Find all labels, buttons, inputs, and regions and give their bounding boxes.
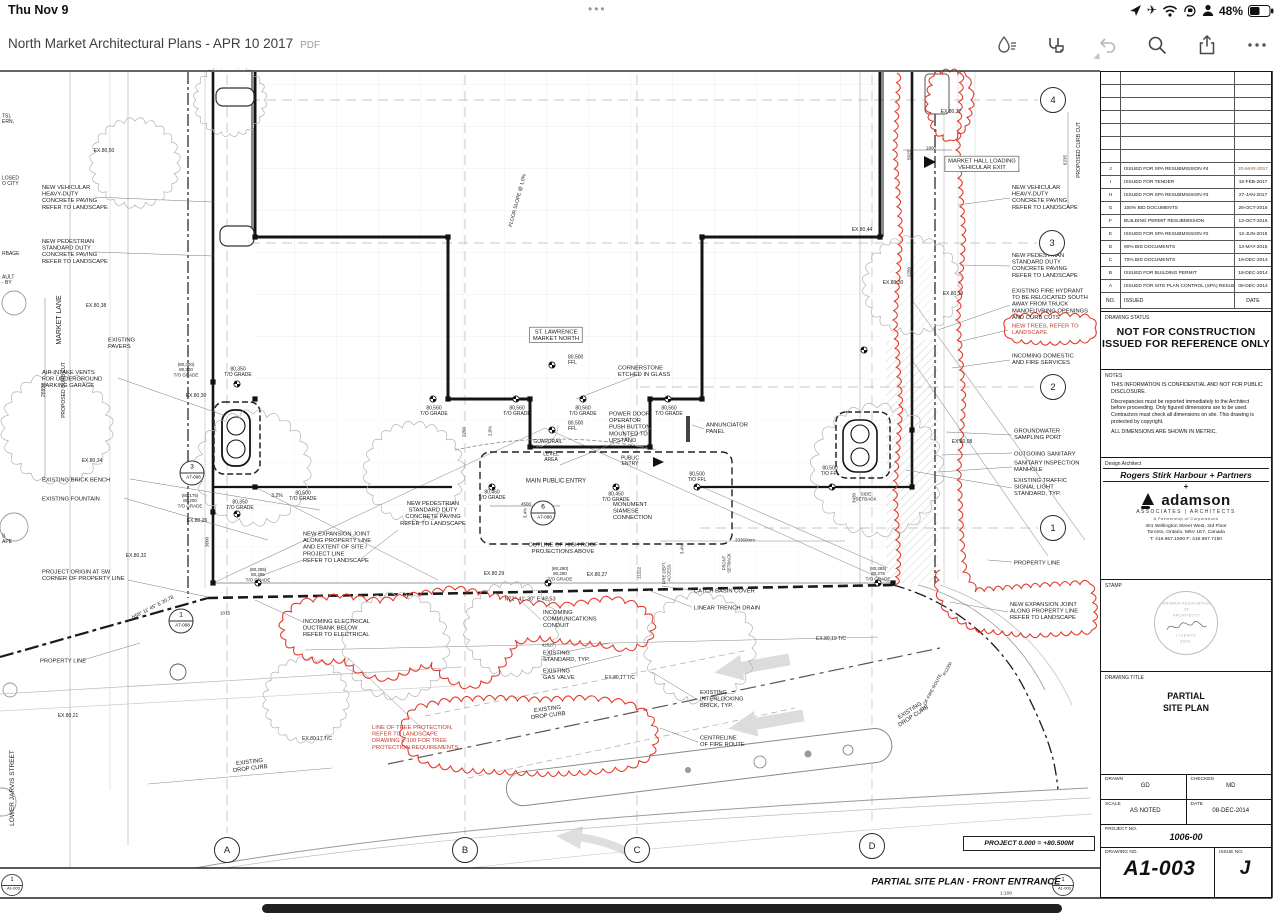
site-plan-drawing (0, 0, 1280, 915)
revision-row: FBUILDING PERMIT RESUBMISSION13-OCT-2016 (1101, 215, 1271, 228)
revision-row (1101, 72, 1271, 85)
revision-cloud (279, 586, 656, 689)
scale-date-row: SCALEAS NOTED DATE08-DEC-2014 (1101, 799, 1271, 824)
issue-no-value: J (1219, 858, 1271, 880)
project-no-value: 1006-00 (1101, 832, 1271, 842)
tree-canopy (342, 592, 450, 700)
more-options-button[interactable] (1246, 34, 1268, 56)
architect-stamp: ONTARIO ASSOCIATION OF ARCHITECTS LICENC… (1154, 591, 1218, 655)
revision-table: JISSUED FOR SPA RESUBMISSION #420-MAR-20… (1101, 72, 1271, 311)
share-icon (1196, 34, 1218, 56)
revision-row: HISSUED FOR SPA RESUBMISSION #327-JAN-20… (1101, 189, 1271, 202)
revision-row: AISSUED FOR SITE PLAN CONTROL (SPA) RESU… (1101, 280, 1271, 293)
view-title: PARTIAL SITE PLAN - FRONT ENTRANCE (872, 877, 1061, 888)
section-label: DRAWING STATUS (1101, 312, 1271, 321)
search-button[interactable] (1146, 34, 1168, 56)
note-p2: Discrepancies must be reported immediate… (1111, 399, 1265, 426)
revision-row (1101, 150, 1271, 163)
revision-row (1101, 98, 1271, 111)
architect-address: 401 Wellington Street West, 3rd Floor To… (1101, 524, 1271, 543)
view-settings-button[interactable] (1046, 34, 1068, 56)
revision-row: NO.ISSUEDDATE (1101, 293, 1271, 309)
liquid-mode-icon (996, 34, 1018, 56)
project-datum-box: PROJECT 0.000 = +80.500M (963, 836, 1095, 851)
drawing-title: PARTIAL SITE PLAN (1101, 691, 1271, 715)
status-date: Thu Nov 9 (8, 3, 68, 17)
date-value: 08-DEC-2014 (1191, 808, 1272, 814)
status-line2: ISSUED FOR REFERENCE ONLY (1101, 338, 1271, 350)
adamson-tagline: A Partnership of Corporations (1120, 517, 1253, 522)
status-line1: NOT FOR CONSTRUCTION (1101, 326, 1271, 338)
share-button[interactable] (1196, 34, 1218, 56)
revision-row (1101, 137, 1271, 150)
wifi-icon (1162, 5, 1178, 17)
status-center-dots-icon: ••• (588, 2, 607, 16)
annunciator-panel-symbol (686, 416, 690, 442)
drawing-title-section: DRAWING TITLE PARTIAL SITE PLAN (1101, 671, 1271, 774)
adamson-logo-text: adamson (1161, 492, 1230, 509)
revision-cloud (1004, 312, 1096, 345)
vehicular-exit-arrow (924, 156, 936, 168)
rotation-lock-icon (1183, 4, 1197, 17)
battery-icon (1248, 5, 1274, 17)
note-p1: THIS INFORMATION IS CONFIDENTIAL AND NOT… (1111, 382, 1265, 396)
revision-row: IISSUED FOR TENDER15-FEB-2017 (1101, 176, 1271, 189)
search-icon (1146, 34, 1168, 56)
revision-cloud (934, 73, 1097, 638)
stamp-signature (1164, 619, 1208, 633)
drawn-checked-row: DRAWNGD CHECKEDMD (1101, 774, 1271, 799)
forecourt-floor-grid (213, 399, 913, 583)
pdf-page[interactable]: TS), ERN,LOSED O CITYRBAGEAULT - BYS APE… (0, 0, 1280, 915)
document-title: North Market Architectural Plans - APR 1… (8, 36, 320, 51)
view-settings-icon (1046, 34, 1068, 56)
drawn-value: GD (1105, 783, 1186, 789)
revision-row (1101, 111, 1271, 124)
note-p3: ALL DIMENSIONS ARE SHOWN IN METRIC. (1111, 429, 1265, 436)
revision-row: G100% BID DOCUMENTS28-OCT-2016 (1101, 202, 1271, 215)
user-icon (1202, 4, 1214, 17)
undo-button[interactable] (1096, 34, 1118, 56)
status-bar: Thu Nov 9 ••• ✈ 48% (0, 0, 1280, 22)
tree-canopy (90, 118, 181, 209)
tree-canopy (644, 592, 756, 704)
acrobat-app: { "status_bar": { "date": "Thu Nov 9", "… (0, 0, 1280, 915)
page-scrubber[interactable] (262, 904, 1062, 913)
revision-row (1101, 124, 1271, 137)
revision-row: JISSUED FOR SPA RESUBMISSION #420-MAR-20… (1101, 163, 1271, 176)
revision-row: EISSUED FOR SPA RESUBMISSION #212-JUN-20… (1101, 228, 1271, 241)
revision-row: C70% BID DOCUMENTS19-DEC-2014 (1101, 254, 1271, 267)
liquid-mode-button[interactable] (996, 34, 1018, 56)
adamson-logo-icon (1141, 493, 1156, 509)
tree-canopy (464, 582, 559, 677)
tree-canopy (263, 657, 349, 743)
revision-row: BISSUED FOR BUILDING PERMIT18-DEC-2014 (1101, 267, 1271, 280)
revision-row: D90% BID DOCUMENTS13-MAY-2015 (1101, 241, 1271, 254)
location-arrow-icon (1129, 4, 1142, 17)
drawing-status-section: DRAWING STATUS NOT FOR CONSTRUCTION ISSU… (1101, 311, 1271, 369)
title-block: JISSUED FOR SPA RESUBMISSION #420-MAR-20… (1100, 71, 1272, 898)
battery-percent: 48% (1219, 4, 1243, 18)
more-options-icon (1246, 34, 1268, 56)
revision-row (1101, 85, 1271, 98)
stamp-section: STAMP ONTARIO ASSOCIATION OF ARCHITECTS … (1101, 579, 1271, 671)
tree-canopy (1, 372, 113, 484)
scale-value: AS NOTED (1105, 808, 1186, 814)
notes-section: NOTES THIS INFORMATION IS CONFIDENTIAL A… (1101, 369, 1271, 457)
checked-value: MD (1191, 783, 1272, 789)
document-toolbar: North Market Architectural Plans - APR 1… (0, 22, 1280, 68)
airplane-mode-icon: ✈ (1147, 4, 1157, 17)
adamson-subtitle: ASSOCIATES | ARCHITECTS (1101, 509, 1271, 515)
clipped-site-circles (0, 291, 186, 816)
design-architect-firm: Rogers Stirk Harbour + Partners (1103, 468, 1269, 482)
view-scale: 1:100 (996, 889, 1016, 898)
drawing-no-value: A1-003 (1105, 857, 1214, 881)
pdf-badge: PDF (300, 40, 320, 51)
drawing-no-row: DRAWING NO. A1-003 ISSUE NO. J (1101, 847, 1271, 897)
project-no-row: PROJECT NO. 1006-00 (1101, 824, 1271, 847)
design-architect-section: Design Architect Rogers Stirk Harbour + … (1101, 457, 1271, 579)
